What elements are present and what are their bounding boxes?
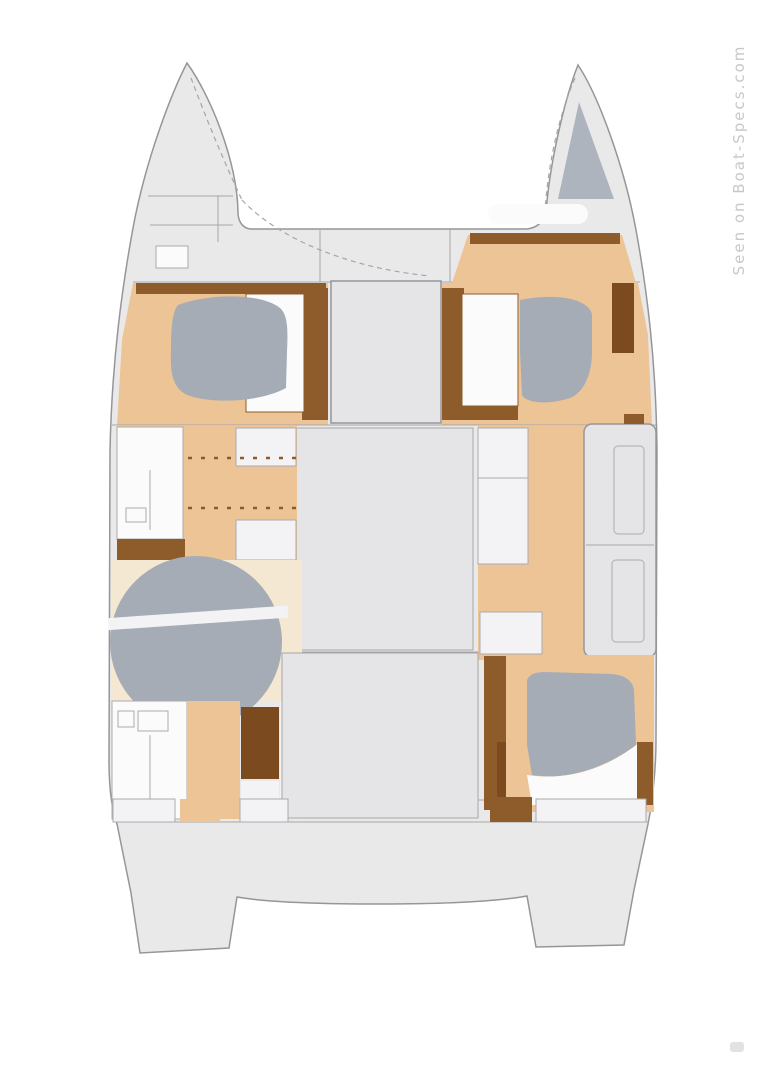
double-berth <box>520 297 592 403</box>
step <box>180 799 220 822</box>
cabinet <box>236 428 296 466</box>
catamaran-floor-plan: Seen on Boat-Specs.com <box>0 0 765 1080</box>
wood-trim <box>136 283 326 294</box>
bed-frame <box>444 406 518 420</box>
cabinet <box>236 520 296 560</box>
cabinet <box>113 799 175 822</box>
galley-counter <box>478 478 528 564</box>
starboard-bow-seat <box>488 204 588 224</box>
bathroom-unit <box>584 424 656 657</box>
port-bow-hatch <box>156 246 188 268</box>
bed-frame <box>302 288 328 420</box>
cabinet <box>478 428 528 478</box>
cockpit-bench <box>536 799 646 822</box>
port-hull-midsection <box>117 426 297 560</box>
corner-smudge <box>730 1042 744 1052</box>
wood-trim <box>117 539 185 560</box>
mattress <box>462 294 518 406</box>
wood-trim <box>490 797 532 822</box>
starboard-hull-midsection <box>478 414 656 660</box>
wood-trim <box>470 233 620 244</box>
aft-saloon <box>282 653 478 818</box>
double-berth <box>171 296 288 400</box>
cabinet <box>240 799 288 822</box>
wardrobe <box>612 283 634 353</box>
wood-trim <box>637 742 653 805</box>
watermark-text: Seen on Boat-Specs.com <box>730 45 748 276</box>
wardrobe <box>241 707 279 779</box>
cabinet <box>480 612 542 654</box>
bed-frame <box>442 288 464 420</box>
aft-starboard-cabin <box>506 655 654 812</box>
saloon <box>289 428 473 650</box>
forward-starboard-cabin <box>442 233 652 425</box>
wood-trim <box>624 414 644 424</box>
forward-port-cabin <box>117 283 328 425</box>
floor-plan-drawing: Seen on Boat-Specs.com <box>0 0 765 1080</box>
central-locker <box>331 281 441 423</box>
